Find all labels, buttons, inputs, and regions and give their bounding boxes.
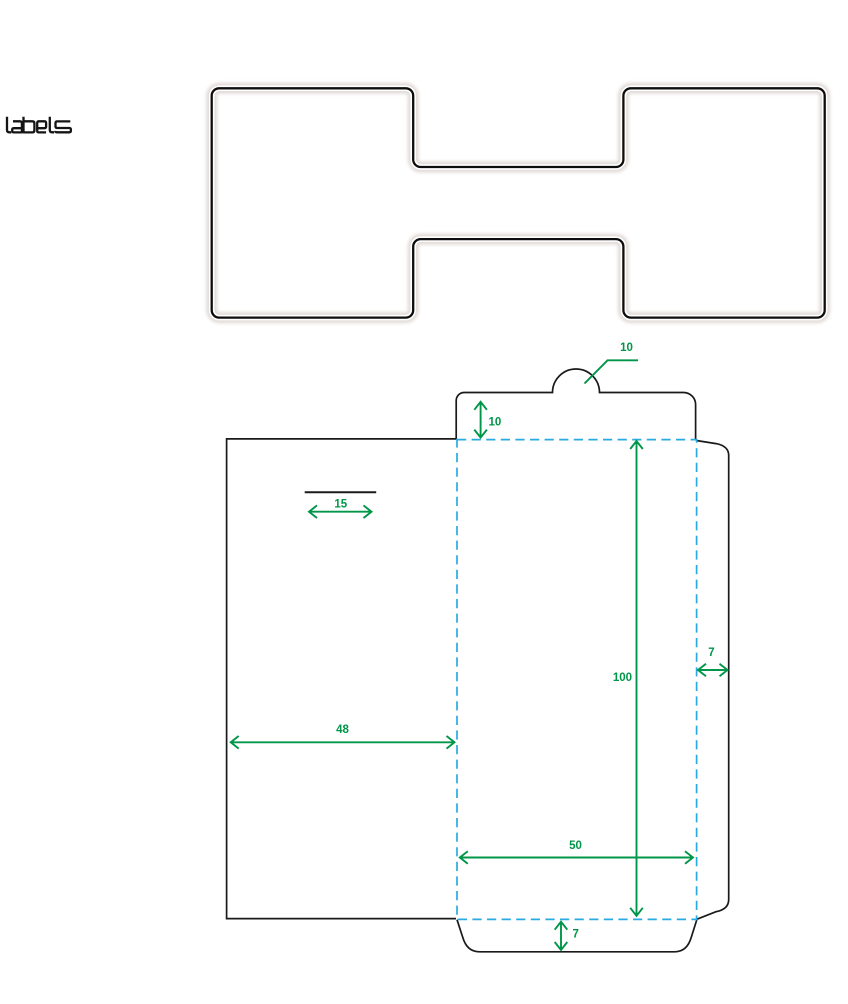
svg-text:100: 100 <box>613 672 632 684</box>
svg-text:10: 10 <box>620 342 633 354</box>
svg-text:15: 15 <box>334 498 347 510</box>
svg-text:48: 48 <box>336 724 349 736</box>
svg-text:7: 7 <box>573 929 579 941</box>
svg-text:10: 10 <box>489 417 502 429</box>
svg-text:7: 7 <box>708 647 714 659</box>
svg-text:50: 50 <box>569 840 582 852</box>
